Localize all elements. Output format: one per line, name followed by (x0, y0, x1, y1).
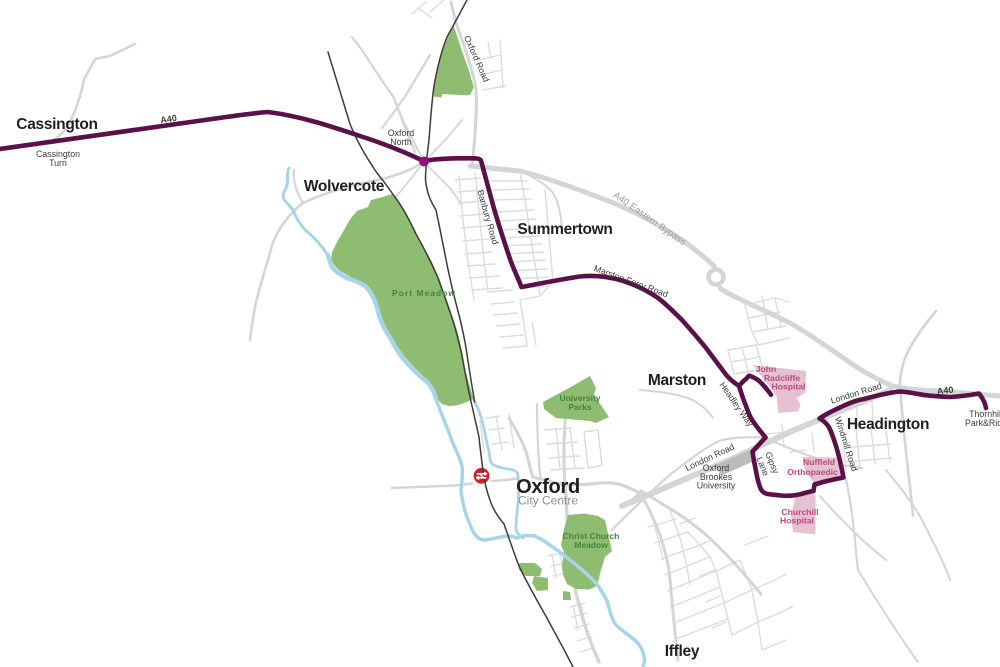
svg-text:Hospital: Hospital (772, 382, 806, 392)
svg-text:Hospital: Hospital (780, 516, 814, 526)
svg-text:Meadow: Meadow (574, 540, 608, 550)
svg-text:Iffley: Iffley (665, 643, 700, 660)
svg-text:Wolvercote: Wolvercote (304, 178, 385, 195)
svg-text:University: University (697, 481, 736, 491)
svg-text:Port Meadow: Port Meadow (392, 288, 456, 298)
svg-text:Nuffield: Nuffield (803, 457, 835, 467)
svg-text:Headington: Headington (847, 416, 929, 433)
svg-text:North: North (390, 137, 412, 147)
svg-text:Park&Ride: Park&Ride (965, 418, 1000, 428)
svg-text:Cassington: Cassington (16, 116, 97, 133)
svg-text:City Centre: City Centre (518, 494, 578, 508)
svg-text:A40: A40 (936, 385, 953, 397)
svg-text:Summertown: Summertown (517, 221, 612, 238)
svg-text:Orthopaedic: Orthopaedic (787, 467, 838, 477)
svg-text:Parks: Parks (568, 402, 591, 412)
svg-text:Turn: Turn (49, 158, 67, 168)
svg-text:Marston: Marston (648, 372, 706, 389)
